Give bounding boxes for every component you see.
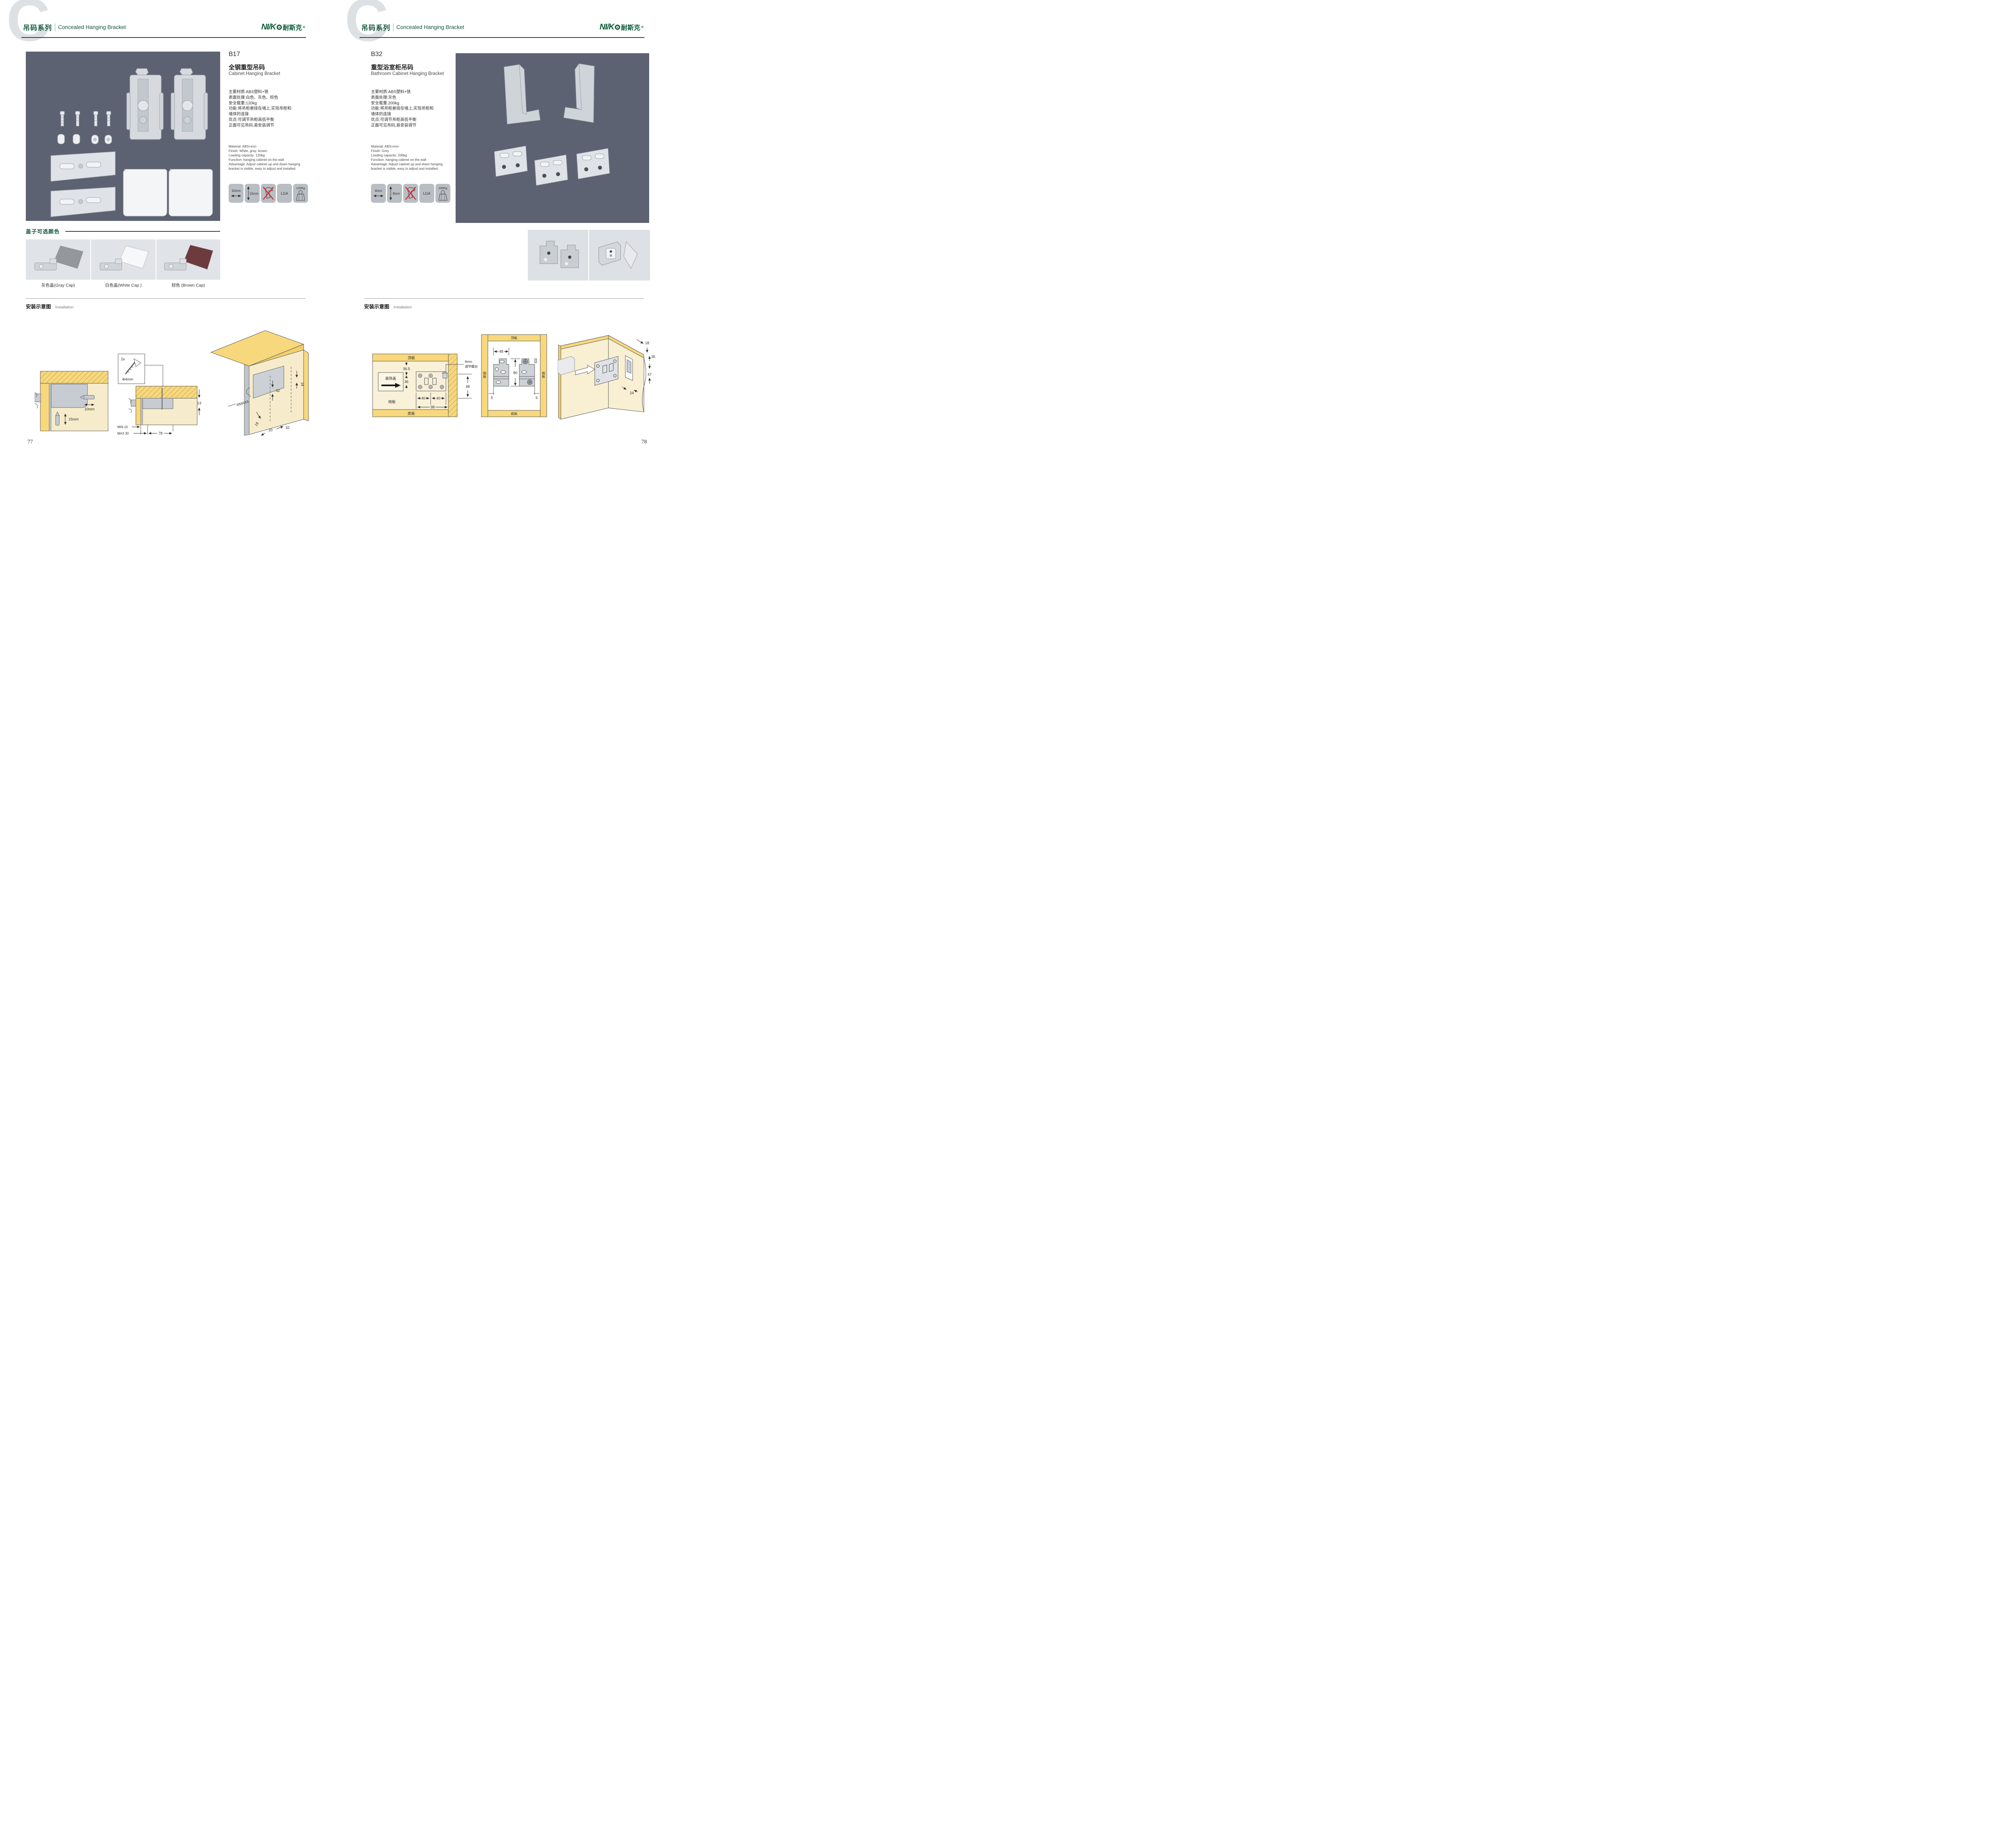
b32-product-photo bbox=[456, 53, 649, 223]
panel-label: 顶板 bbox=[408, 356, 415, 360]
badge-label: 10mm bbox=[231, 189, 241, 193]
spec-line: 主要材质:ABS塑料+铁 bbox=[229, 89, 309, 95]
install-diagram-dims: 2x Φ4mm 13 MIN.10 MAX.30 78 bbox=[117, 349, 203, 436]
dim-label: 35 bbox=[651, 355, 655, 359]
install-diagram-pair: 顶板 底板 侧板 侧板 48 80 5 bbox=[480, 333, 548, 418]
dim-label: 40 bbox=[421, 396, 425, 400]
dim-label: 15mm bbox=[69, 417, 79, 421]
header-separator bbox=[55, 23, 55, 31]
spec-line: bracket is visible, easy to adjust and i… bbox=[371, 166, 456, 171]
dim-label: 5 bbox=[491, 396, 493, 400]
dim-label: 36.5 bbox=[403, 367, 410, 371]
no-drill-badge bbox=[261, 184, 276, 203]
logo-cjk: 耐斯克 bbox=[283, 22, 302, 32]
logo-latin: NI/K bbox=[261, 23, 276, 32]
dim-label: 5 bbox=[535, 396, 537, 400]
header: 吊码系列 Concealed Hanging Bracket bbox=[23, 22, 126, 32]
brand-logo: NI/K 耐斯克 ® bbox=[600, 22, 644, 32]
spec-line: 安全载重:120kg bbox=[229, 101, 309, 106]
dim-label: 36 bbox=[404, 380, 408, 384]
panel-label: 侧板 bbox=[542, 371, 546, 379]
specs-en: Material: ABS+iron Finish: White, gray, … bbox=[229, 144, 313, 171]
installation-title-cn: 安装示意图 bbox=[26, 302, 51, 310]
series-title-cn: 吊码系列 bbox=[361, 22, 390, 32]
spec-line: 优点:可调节吊柜高低平衡 bbox=[371, 117, 452, 123]
dim-label: MAX.30 bbox=[117, 432, 129, 435]
page-number: 77 bbox=[27, 439, 33, 445]
spec-line: 功能:将吊柜悬挂在墙上,实现吊柜和 bbox=[229, 106, 309, 112]
spec-line: Function: hanging cabinet on the wall bbox=[371, 158, 456, 162]
feature-badges: 10mm 15mm LGA 120Kg bbox=[229, 184, 308, 203]
header-rule bbox=[21, 37, 306, 38]
header-separator bbox=[393, 23, 394, 31]
panel-label: 侧板 bbox=[483, 371, 487, 379]
dim-label: 32 bbox=[276, 389, 280, 393]
installation-title-en: Installation bbox=[394, 305, 412, 310]
install-diagram-front: 顶板 底板 装饰盖 36.5 36 40 40 98 bbox=[371, 352, 482, 419]
dim-label: 34 bbox=[300, 382, 304, 386]
weight-icon bbox=[441, 191, 445, 194]
deco-cap-label: 装饰盖 bbox=[385, 376, 396, 381]
spec-line: 墙体的连接 bbox=[371, 112, 452, 117]
weight-icon bbox=[439, 194, 447, 201]
spec-line: 正面可见吊码,易安装调节 bbox=[229, 123, 309, 129]
feature-badges: 4mm 8mm LGA 200Kg bbox=[371, 184, 450, 203]
spec-line: Loading capacity: 120kg bbox=[229, 153, 313, 158]
screw-qty: 2x bbox=[121, 357, 125, 361]
spec-line: 正面可见吊码,易安装调节 bbox=[371, 123, 452, 129]
header-rule bbox=[360, 37, 644, 38]
width-badge: 10mm bbox=[229, 184, 244, 203]
series-title-en: Concealed Hanging Bracket bbox=[396, 24, 464, 30]
page-right: C 吊码系列 Concealed Hanging Bracket NI/K 耐斯… bbox=[338, 0, 676, 462]
cap-label: 棕色 (Brown Cap) bbox=[156, 282, 220, 288]
installation-title: 安装示意图 Installation bbox=[364, 302, 412, 310]
section-divider bbox=[26, 298, 306, 299]
weight-icon bbox=[299, 191, 302, 194]
dim-label: 32 bbox=[285, 426, 289, 430]
spec-line: Material: ABS+iron bbox=[371, 144, 456, 149]
spec-line: Finish: Grey bbox=[371, 149, 456, 153]
install-diagram-iso: 34 32 RMAX4 18 20 32 bbox=[205, 327, 310, 438]
badge-label: 4mm bbox=[375, 189, 382, 193]
spec-line: Advantage: Adjust cabinet up and down ha… bbox=[229, 162, 313, 166]
brand-logo: NI/K 耐斯克 ® bbox=[261, 22, 305, 32]
spec-line: 墙体的连接 bbox=[229, 112, 309, 117]
logo-latin: NI/K bbox=[600, 23, 614, 32]
adjuster-screw-icon bbox=[442, 372, 448, 378]
dim-label: 98 bbox=[431, 405, 435, 409]
dim-label: 18 bbox=[645, 341, 649, 345]
badge-label: LGA bbox=[423, 191, 430, 196]
spec-line: bracket is visible, easy to adjust and i… bbox=[229, 166, 313, 171]
dim-label: 78 bbox=[158, 431, 162, 435]
specs-en: Material: ABS+iron Finish: Grey Loading … bbox=[371, 144, 456, 171]
height-badge: 15mm bbox=[245, 184, 260, 203]
badge-label: 8mm bbox=[393, 192, 400, 196]
dim-label: 47 bbox=[648, 372, 652, 376]
dim-label: 10mm bbox=[84, 407, 94, 411]
spec-line: 优点:可调节吊柜高低平衡 bbox=[229, 117, 309, 123]
product-code: B32 bbox=[371, 51, 382, 58]
dim-label: 48 bbox=[466, 385, 470, 389]
b17-product-photo bbox=[26, 52, 220, 221]
logo-o-icon bbox=[615, 25, 620, 30]
cap-swatch-image bbox=[91, 239, 156, 280]
logo-registered-mark: ® bbox=[641, 25, 644, 29]
install-diagram-iso: 18 35 47 24 bbox=[558, 331, 658, 421]
badge-label: 200Kg bbox=[439, 186, 448, 190]
cap-label: 灰色盖(Gray Cap) bbox=[26, 282, 90, 288]
dim-label: 80 bbox=[513, 371, 517, 375]
spec-line: 功能:将吊柜悬挂在墙上,实现吊柜和 bbox=[371, 106, 452, 112]
spec-line: 主要材质:ABS塑料+铁 bbox=[371, 89, 452, 95]
section-divider bbox=[364, 298, 644, 299]
logo-o-icon bbox=[277, 25, 282, 30]
series-title-en: Concealed Hanging Bracket bbox=[58, 24, 126, 30]
cap-colors-rule bbox=[65, 231, 220, 232]
specs-cn: 主要材质:ABS塑料+铁 表面处理:白色、灰色、棕色 安全载重:120kg 功能… bbox=[229, 89, 309, 129]
load-badge: 200Kg bbox=[435, 184, 450, 203]
width-badge: 4mm bbox=[371, 184, 386, 203]
cap-swatch-white bbox=[91, 239, 156, 280]
product-name-en: Bathroom Cabinet Hanging Bracket bbox=[371, 71, 444, 76]
header: 吊码系列 Concealed Hanging Bracket bbox=[361, 22, 464, 32]
cap-swatch-gray bbox=[26, 239, 90, 280]
installation-title-cn: 安装示意图 bbox=[364, 302, 389, 310]
cap-swatch-brown bbox=[156, 239, 220, 280]
badge-label: 15mm bbox=[250, 192, 259, 196]
product-name-cn: 全钢重型吊码 bbox=[229, 63, 265, 71]
cap-colors-title: 盖子可选颜色 bbox=[26, 227, 60, 235]
dim-label: 24 bbox=[630, 391, 634, 395]
product-code: B17 bbox=[229, 51, 240, 58]
screw-note: 8mm bbox=[465, 360, 472, 364]
installation-title-en: Installation bbox=[55, 305, 73, 310]
badge-label: LGA bbox=[281, 191, 288, 196]
panel-label: 侧板 bbox=[388, 399, 396, 404]
cap-label: 白色盖(White Cap ) bbox=[91, 282, 156, 288]
weight-icon bbox=[296, 194, 305, 201]
spec-line: Advantage: Adjust cabinet up and down ha… bbox=[371, 162, 456, 166]
cap-swatch-image bbox=[26, 239, 90, 280]
dim-label: MIN.10 bbox=[117, 425, 128, 429]
spec-line: Function: hanging cabinet on the wall bbox=[229, 158, 313, 162]
logo-cjk: 耐斯克 bbox=[621, 22, 640, 32]
screw-note: 调节螺丝 bbox=[465, 364, 478, 368]
spec-line: Material: ABS+iron bbox=[229, 144, 313, 149]
detail-photo-bracket bbox=[589, 230, 650, 281]
install-diagram-section: 10mm 15mm bbox=[35, 369, 111, 433]
catalog-spread: C 吊码系列 Concealed Hanging Bracket NI/K 耐斯… bbox=[0, 0, 676, 462]
page-left: C 吊码系列 Concealed Hanging Bracket NI/K 耐斯… bbox=[0, 0, 338, 462]
panel-label: 顶板 bbox=[511, 336, 517, 340]
product-name-en: Cabinet Hanging Bracket bbox=[229, 71, 280, 76]
cert-badge: LGA bbox=[419, 184, 434, 203]
load-badge: 120Kg bbox=[293, 184, 308, 203]
specs-cn: 主要材质:ABS塑料+铁 表面处理:灰色 安全载重:200kg 功能:将吊柜悬挂… bbox=[371, 89, 452, 129]
series-title-cn: 吊码系列 bbox=[23, 22, 52, 32]
logo-registered-mark: ® bbox=[303, 25, 305, 29]
dim-label: 40 bbox=[436, 396, 440, 400]
dim-label: 20 bbox=[269, 428, 273, 432]
dim-label: 48 bbox=[499, 349, 503, 354]
installation-title: 安装示意图 Installation bbox=[26, 302, 73, 310]
spec-line: Loading capacity: 200kg bbox=[371, 153, 456, 158]
badge-label: 120Kg bbox=[296, 186, 305, 190]
cert-badge: LGA bbox=[277, 184, 292, 203]
spec-line: Finish: White, gray, brown bbox=[229, 149, 313, 153]
screw-bit-icon bbox=[80, 395, 94, 399]
page-number: 78 bbox=[641, 439, 647, 445]
spec-line: 表面处理:白色、灰色、棕色 bbox=[229, 95, 309, 101]
panel-label: 底板 bbox=[511, 412, 517, 416]
dim-label: 13 bbox=[197, 401, 201, 405]
height-badge: 8mm bbox=[387, 184, 402, 203]
spec-line: 安全载重:200kg bbox=[371, 101, 452, 106]
detail-photo-plates bbox=[528, 230, 588, 281]
product-name-cn: 重型浴室柜吊码 bbox=[371, 63, 413, 71]
spec-line: 表面处理:灰色 bbox=[371, 95, 452, 101]
cap-swatch-image bbox=[156, 239, 220, 280]
panel-label: 底板 bbox=[408, 411, 415, 416]
screw-dia: Φ4mm bbox=[122, 377, 133, 381]
no-drill-badge bbox=[403, 184, 418, 203]
